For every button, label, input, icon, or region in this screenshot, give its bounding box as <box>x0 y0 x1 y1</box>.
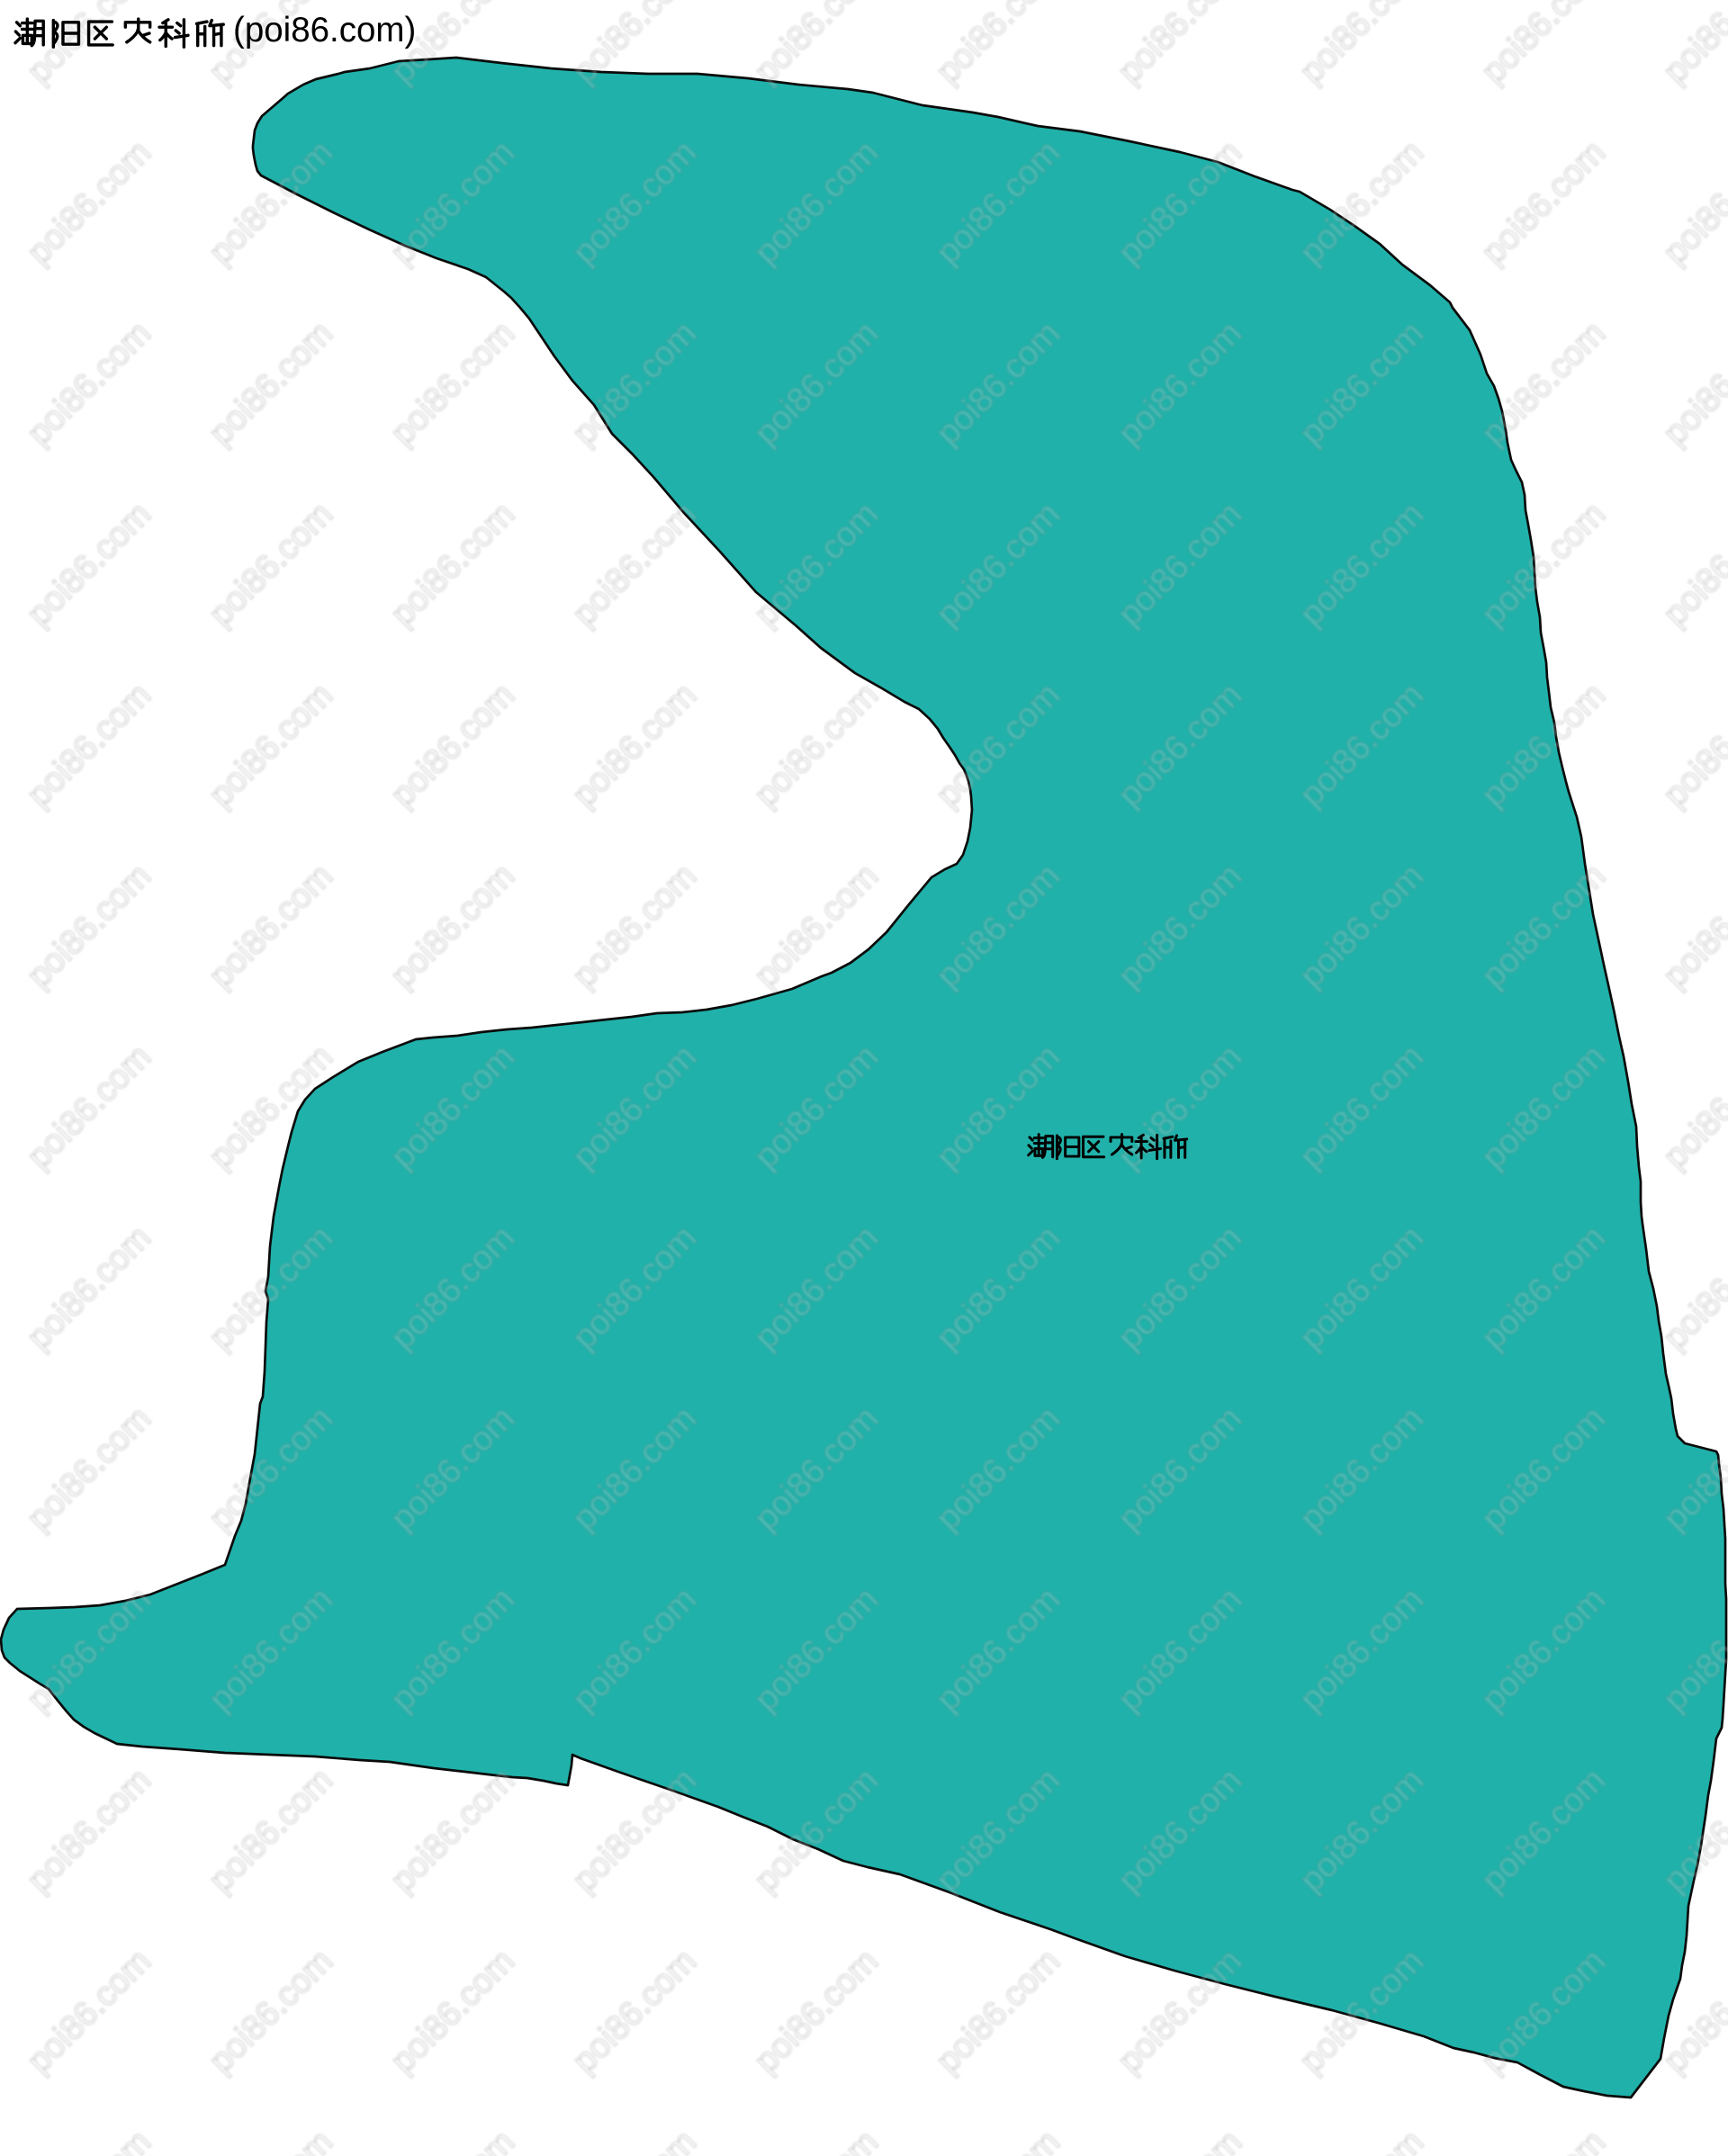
svg-text:(poi86.com): (poi86.com) <box>233 11 416 49</box>
